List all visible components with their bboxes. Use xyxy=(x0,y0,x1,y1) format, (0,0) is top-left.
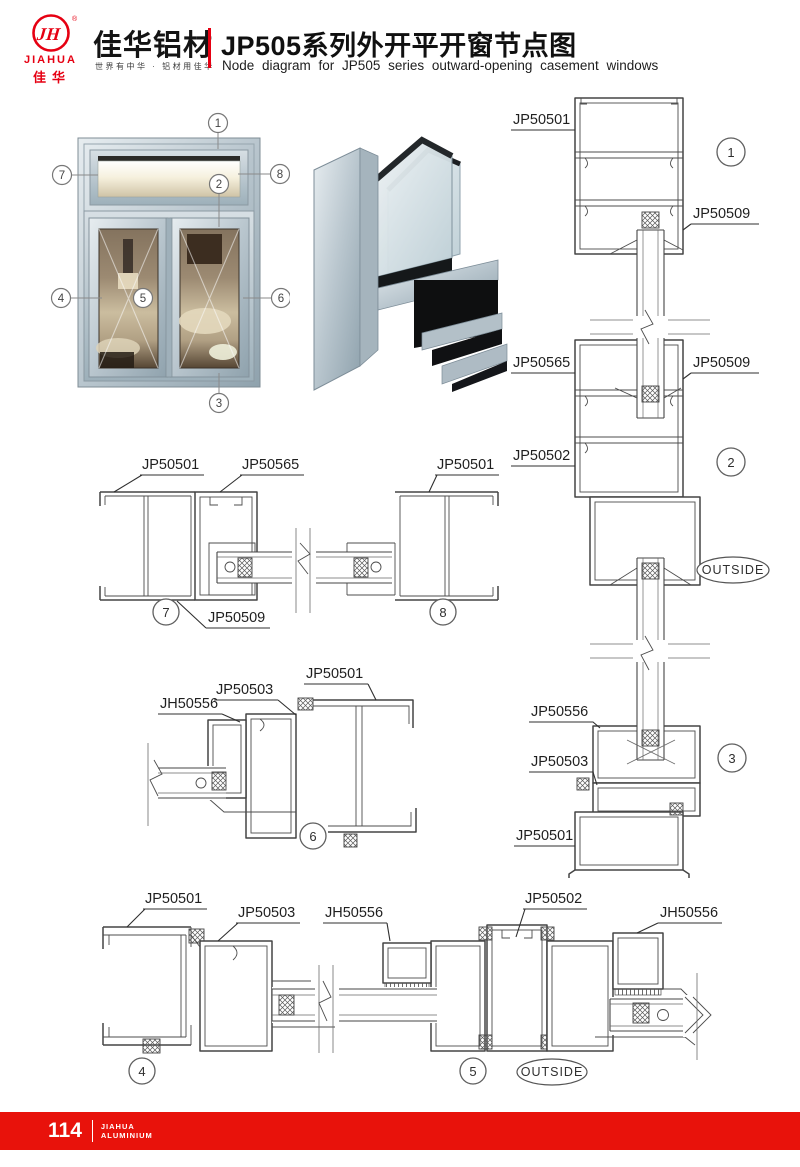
profile-frame-top xyxy=(575,98,683,254)
svg-text:JP50501: JP50501 xyxy=(142,457,199,473)
profile-frame xyxy=(313,700,416,832)
company-slogan: 世界有中华 · 铝材用佳华 xyxy=(95,61,215,72)
registered-mark: ® xyxy=(72,15,78,23)
section-callout-1: 1 xyxy=(717,138,745,166)
part-label: JP50501 xyxy=(304,666,376,700)
svg-text:JP50565: JP50565 xyxy=(242,457,299,473)
logo-monogram: JH xyxy=(35,24,62,44)
part-label: JP50501 xyxy=(514,828,575,846)
section-callout-4: 4 xyxy=(129,1058,155,1084)
footer-bar: 114 JIAHUA ALUMINIUM xyxy=(0,1112,800,1150)
center-mullion xyxy=(166,218,172,377)
section-callout-7: 7 xyxy=(153,599,179,625)
overview-callout-2: 2 xyxy=(210,175,229,194)
left-profile-face xyxy=(314,148,360,390)
footer-brand: JIAHUA ALUMINIUM xyxy=(101,1122,153,1140)
svg-text:3: 3 xyxy=(728,751,735,766)
svg-text:OUTSIDE: OUTSIDE xyxy=(702,563,765,577)
part-label: JP50509 xyxy=(683,355,759,379)
part-label: JP50503 xyxy=(218,905,300,941)
overview-callout-8: 8 xyxy=(271,165,290,184)
part-label: JP50565 xyxy=(511,355,575,373)
svg-text:OUTSIDE: OUTSIDE xyxy=(521,1065,584,1079)
horizontal-section-top: JP50501 JP50565 JP50501 JP50509 7 8 xyxy=(92,443,512,638)
overview-callout-4: 4 xyxy=(52,289,71,308)
right-sash-glass xyxy=(179,229,239,368)
part-label: JH50556 xyxy=(323,905,390,941)
svg-text:JP50503: JP50503 xyxy=(216,682,273,698)
footer-separator xyxy=(92,1120,93,1142)
profile-mullion xyxy=(487,925,547,1051)
profile-frame-left xyxy=(103,927,191,1045)
part-label: JP50502 xyxy=(511,448,575,466)
svg-text:6: 6 xyxy=(278,293,284,305)
svg-text:JP50503: JP50503 xyxy=(531,754,588,770)
part-label: JP50503 xyxy=(214,682,296,715)
svg-text:2: 2 xyxy=(216,179,222,191)
section-callout-3: 3 xyxy=(718,744,746,772)
profile-sash-right xyxy=(547,941,613,1051)
profile-frame-mid xyxy=(575,340,683,497)
company-name: 佳华铝材 xyxy=(93,22,213,64)
svg-text:7: 7 xyxy=(59,170,65,182)
part-label: JP50509 xyxy=(177,601,270,628)
svg-text:5: 5 xyxy=(140,293,146,305)
svg-text:JH50556: JH50556 xyxy=(325,905,383,921)
profile-adaptor-2 xyxy=(613,933,663,995)
part-label: JP50565 xyxy=(220,457,304,492)
page-number: 114 xyxy=(48,1119,82,1143)
part-label: JP50501 xyxy=(114,457,204,492)
overview-callout-6: 6 xyxy=(272,289,291,308)
svg-text:JP50502: JP50502 xyxy=(513,448,570,464)
svg-text:JP50501: JP50501 xyxy=(145,891,202,907)
profile-mullion xyxy=(195,492,257,600)
header: JH ® JIAHUA 佳华 佳华铝材 世界有中华 · 铝材用佳华 JP505系… xyxy=(0,0,800,95)
part-label: JP50501 xyxy=(511,112,575,130)
part-label: JH50556 xyxy=(637,905,722,933)
profile-3d-render xyxy=(302,128,512,398)
jiahua-logo-icon: JH ® xyxy=(28,12,78,54)
part-label: JP50509 xyxy=(683,206,759,230)
svg-text:JP50501: JP50501 xyxy=(513,112,570,128)
svg-text:1: 1 xyxy=(215,118,221,130)
part-label: JP50501 xyxy=(127,891,207,927)
svg-text:JP50502: JP50502 xyxy=(525,891,582,907)
section-callout-5: 5 xyxy=(460,1058,486,1084)
svg-text:JP50509: JP50509 xyxy=(208,610,265,626)
section-callout-2: 2 xyxy=(717,448,745,476)
overview-callout-5: 5 xyxy=(134,289,153,308)
svg-text:8: 8 xyxy=(439,605,446,620)
section-callout-8: 8 xyxy=(430,599,456,625)
profile-frame-right xyxy=(395,492,498,600)
svg-text:8: 8 xyxy=(277,169,283,181)
svg-text:7: 7 xyxy=(162,605,169,620)
corner-detail-diagram: JP50501 JP50503 JH50556 6 xyxy=(128,658,428,858)
profile-adaptor-1 xyxy=(383,943,431,989)
svg-text:5: 5 xyxy=(469,1064,476,1079)
logo-brand-cn: 佳华 xyxy=(33,67,71,86)
header-divider xyxy=(208,28,211,68)
svg-text:3: 3 xyxy=(216,398,222,410)
svg-text:JP50501: JP50501 xyxy=(437,457,494,473)
vertical-section-diagram: JP50501 JP50509 JP50565 JP50509 JP50502 … xyxy=(505,88,800,878)
profile-sash xyxy=(246,714,296,838)
page-subtitle: Node diagram for JP505 series outward-op… xyxy=(222,58,658,73)
profile-sash-left xyxy=(191,935,272,1051)
svg-text:JP50556: JP50556 xyxy=(531,704,588,720)
footer-brand-bottom: ALUMINIUM xyxy=(101,1131,153,1140)
catalog-page: JH ® JIAHUA 佳华 佳华铝材 世界有中华 · 铝材用佳华 JP505系… xyxy=(0,0,800,1167)
svg-text:JH50556: JH50556 xyxy=(160,696,218,712)
svg-text:2: 2 xyxy=(727,455,734,470)
svg-text:6: 6 xyxy=(309,829,316,844)
svg-text:JH50556: JH50556 xyxy=(660,905,718,921)
svg-text:JP50509: JP50509 xyxy=(693,355,750,371)
logo-brand-en: JIAHUA xyxy=(24,54,77,66)
overview-callout-7: 7 xyxy=(53,166,72,185)
part-label: JP50556 xyxy=(529,704,600,728)
svg-text:4: 4 xyxy=(58,293,65,305)
svg-text:JP50503: JP50503 xyxy=(238,905,295,921)
part-label: JP50501 xyxy=(429,457,499,492)
horizontal-section-bottom: JP50501 JP50503 JH50556 JP50502 JH50556 … xyxy=(85,885,800,1090)
profile-sash-bottom-group xyxy=(569,726,700,878)
profile-frame-left xyxy=(100,492,195,600)
window-overview-photo: 1 7 8 2 4 5 6 3 xyxy=(40,105,290,415)
overview-callout-3: 3 xyxy=(210,394,229,413)
section-callout-6: 6 xyxy=(300,823,326,849)
svg-text:JP50501: JP50501 xyxy=(516,828,573,844)
svg-text:1: 1 xyxy=(727,145,734,160)
svg-text:JP50509: JP50509 xyxy=(693,206,750,222)
profile-pocket-wall xyxy=(431,941,485,1051)
outside-label: OUTSIDE xyxy=(697,557,769,583)
footer-brand-top: JIAHUA xyxy=(101,1122,153,1131)
svg-text:JP50501: JP50501 xyxy=(306,666,363,682)
svg-text:JP50565: JP50565 xyxy=(513,355,570,371)
overview-callout-1: 1 xyxy=(209,114,228,133)
outside-label: OUTSIDE xyxy=(517,1059,587,1085)
svg-text:4: 4 xyxy=(138,1064,145,1079)
